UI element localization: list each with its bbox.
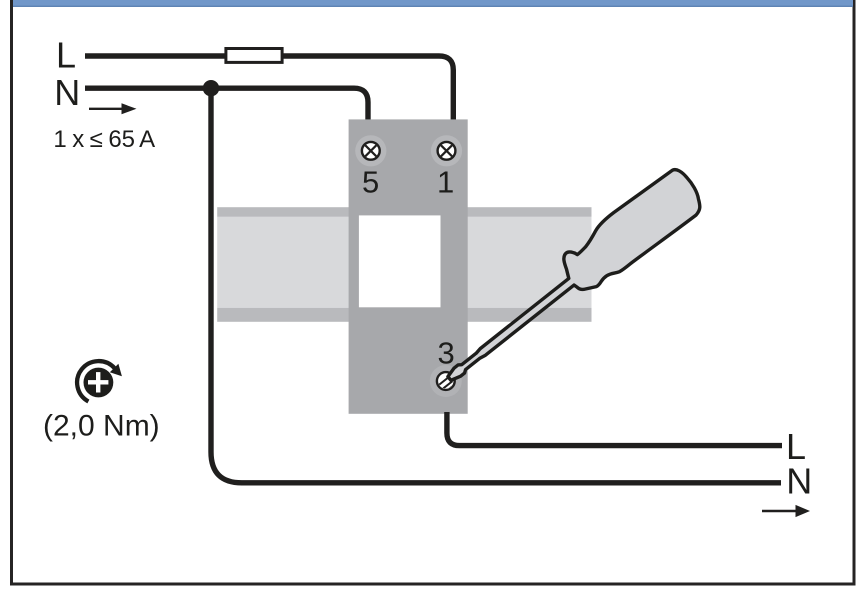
svg-text:(2,0 Nm): (2,0 Nm)	[43, 410, 160, 443]
svg-text:1 x ≤ 65 A: 1 x ≤ 65 A	[53, 126, 155, 153]
svg-text:1: 1	[437, 165, 454, 200]
svg-text:N: N	[786, 460, 812, 501]
svg-text:5: 5	[362, 165, 379, 200]
svg-text:L: L	[56, 35, 76, 76]
svg-text:N: N	[54, 72, 80, 113]
